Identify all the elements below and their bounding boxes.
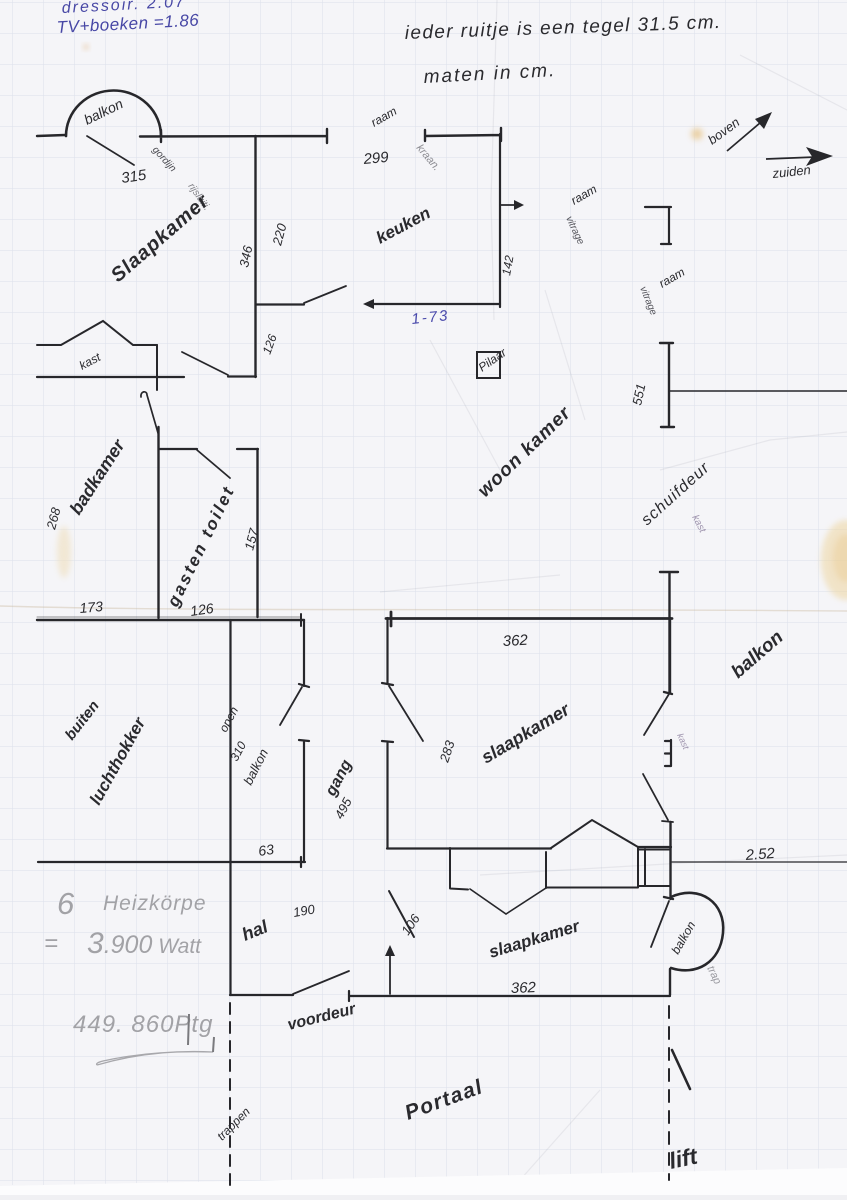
svg-text:Heizkörpe: Heizkörpe [103,892,207,915]
svg-text:126: 126 [189,600,215,619]
svg-text:6: 6 [57,886,75,921]
svg-text:362: 362 [511,979,537,997]
svg-text:362: 362 [502,632,529,650]
svg-text:449. 860Ptg: 449. 860Ptg [73,1011,213,1038]
svg-text:=: = [44,930,58,957]
svg-text:173: 173 [79,598,104,616]
svg-text:2.52: 2.52 [744,845,776,864]
svg-text:63: 63 [257,841,275,859]
svg-text:299: 299 [362,149,390,168]
svg-text:315: 315 [120,167,148,187]
